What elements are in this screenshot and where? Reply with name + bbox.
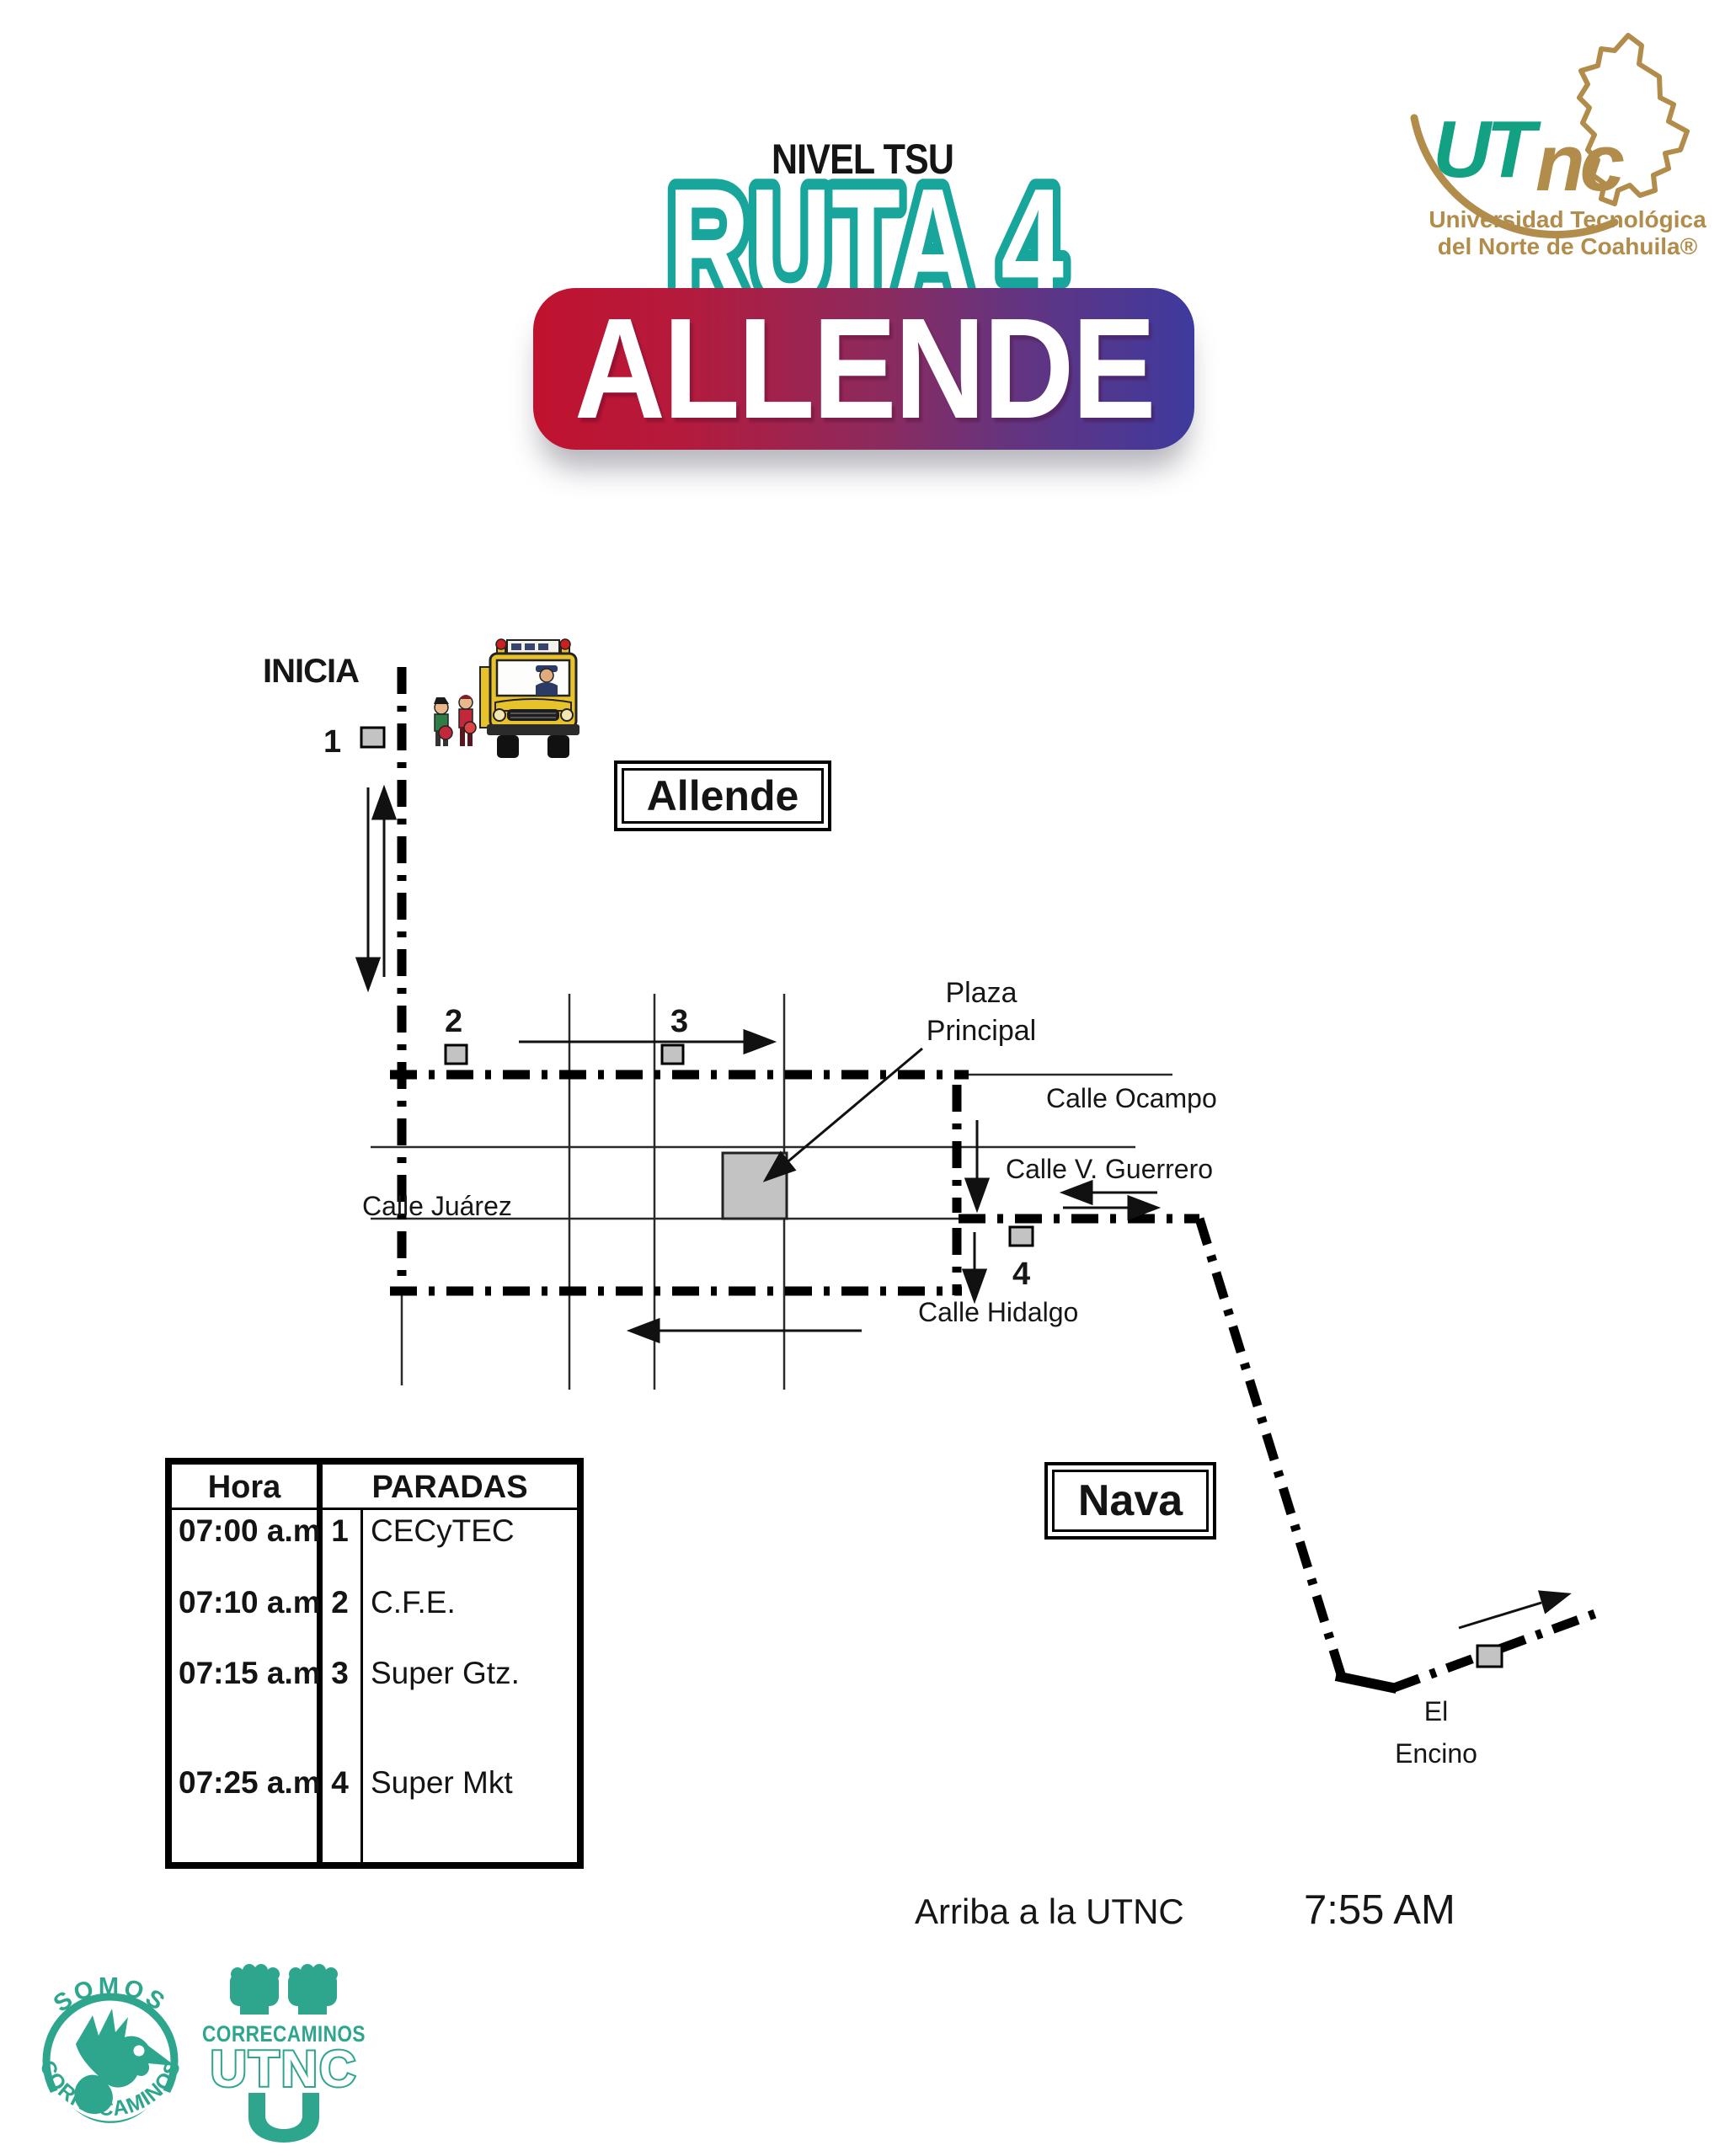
row3-num: 3 [317, 1656, 363, 1691]
fists-icon [230, 1964, 338, 2015]
nava-city-box: Nava [1044, 1462, 1216, 1540]
plaza-line1: Plaza [910, 974, 1053, 1012]
stop-2-marker [446, 1045, 467, 1064]
row3-stop: Super Gtz. [371, 1656, 520, 1691]
arrival-time: 7:55 AM [1304, 1886, 1455, 1934]
stamp-u-icon [248, 2093, 319, 2143]
stop-4-marker [1010, 1227, 1033, 1246]
plaza-line2: Principal [910, 1012, 1053, 1050]
stop-1-marker [361, 728, 384, 747]
plaza-principal-label: Plaza Principal [910, 974, 1053, 1050]
arrival-label: Arriba a la UTNC [915, 1892, 1184, 1932]
encino-line2: Encino [1373, 1733, 1499, 1775]
row4-stop: Super Mkt [371, 1765, 513, 1801]
el-encino-marker [1477, 1646, 1502, 1667]
stop-2-number: 2 [445, 1004, 462, 1040]
row2-stop: C.F.E. [371, 1585, 456, 1620]
stop-3-number: 3 [670, 1004, 688, 1040]
row4-num: 4 [317, 1765, 363, 1801]
school-bus-illustration [419, 633, 596, 768]
schedule-header-row: Hora PARADAS [172, 1465, 577, 1510]
start-label: INICIA [263, 653, 359, 691]
row2-num: 2 [317, 1585, 363, 1620]
encino-line1: El [1373, 1691, 1499, 1733]
somos-correcaminos-logo: SOMOS CORRECAMINOS [32, 1958, 188, 2145]
stop-1-number: 1 [323, 724, 341, 760]
correcaminos-utnc-stamp: CORRECAMINOS UTNC [198, 1956, 371, 2148]
allende-city-label: Allende [622, 768, 824, 824]
row2-time: 07:10 a.m [179, 1585, 321, 1620]
street-guerrero-label: Calle V. Guerrero [1006, 1154, 1213, 1185]
row1-time: 07:00 a.m [179, 1513, 321, 1549]
bus-route-corner [1336, 1676, 1397, 1689]
roadrunner-eye-icon [134, 2046, 145, 2057]
stop-3-marker [662, 1045, 683, 1064]
row1-stop: CECyTEC [371, 1513, 515, 1549]
stamp-acronym-text: UTNC [211, 2041, 358, 2097]
row1-num: 1 [317, 1513, 363, 1549]
street-hidalgo-label: Calle Hidalgo [918, 1297, 1078, 1328]
nava-city-label: Nava [1052, 1470, 1209, 1532]
row3-time: 07:15 a.m [179, 1656, 321, 1691]
col-header-hora: Hora [172, 1470, 317, 1506]
bus-icon [480, 639, 579, 758]
allende-city-box: Allende [614, 760, 831, 831]
svg-text:SOMOS: SOMOS [49, 1973, 172, 2018]
el-encino-label: El Encino [1373, 1691, 1499, 1774]
row4-time: 07:25 a.m [179, 1765, 321, 1801]
children-icon [434, 695, 476, 746]
somos-arc-text: SOMOS [49, 1973, 172, 2018]
street-ocampo-label: Calle Ocampo [1046, 1083, 1217, 1114]
schedule-table: Hora PARADAS 07:00 a.m 1 CECyTEC 07:10 a… [165, 1458, 584, 1869]
street-juarez-label: Calle Juárez [362, 1191, 512, 1222]
col-header-paradas: PARADAS [323, 1470, 577, 1506]
stop-4-number: 4 [1012, 1257, 1030, 1293]
